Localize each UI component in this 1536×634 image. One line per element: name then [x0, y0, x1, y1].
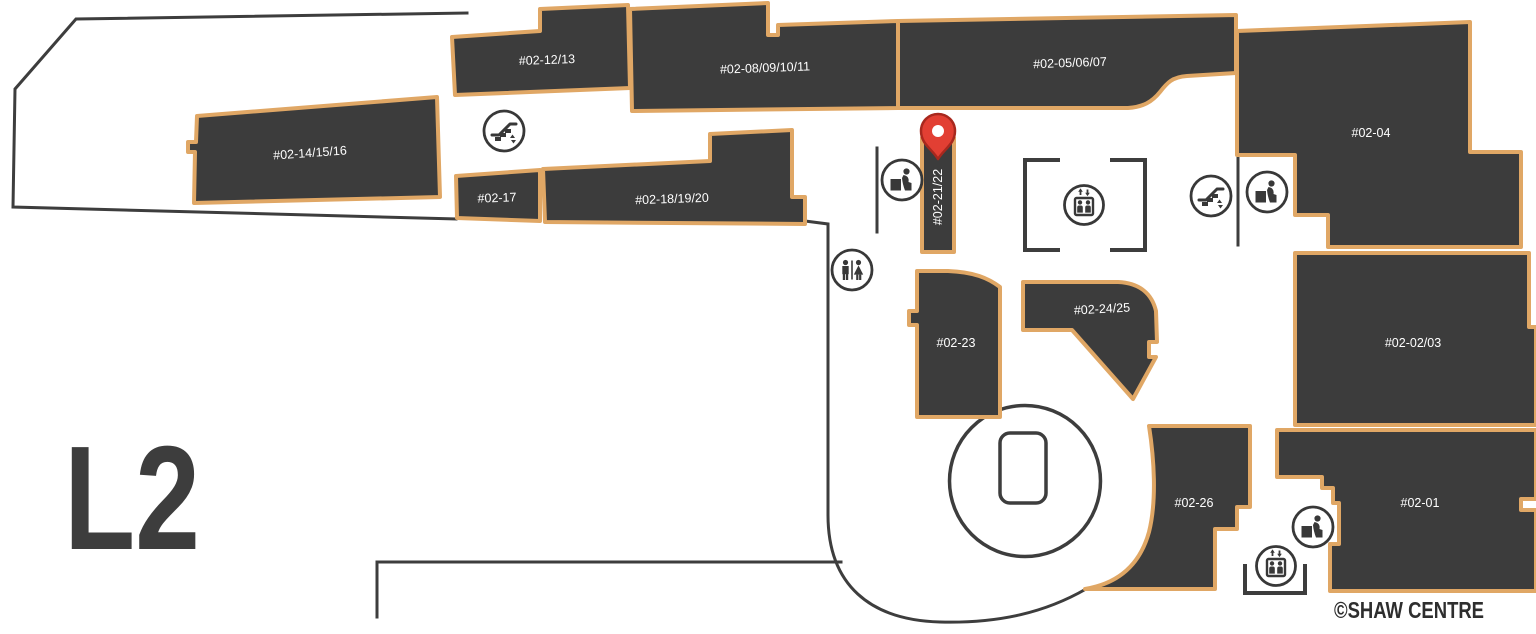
- unit-label: #02-26: [1175, 496, 1214, 510]
- unit-label: #02-21/22: [931, 169, 945, 225]
- unit-label: #02-01: [1401, 496, 1440, 510]
- unit-label: #02-04: [1352, 126, 1391, 140]
- restroom-icon: [832, 250, 872, 290]
- unit-02-18-19-20[interactable]: #02-18/19/20: [543, 130, 805, 224]
- elevator-bay-bracket-left: [1025, 160, 1060, 250]
- unit-02-04[interactable]: #02-04: [1237, 22, 1521, 247]
- copyright-text: ©SHAW CENTRE: [1334, 597, 1484, 623]
- unit-02-12-13[interactable]: #02-12/13: [452, 5, 630, 95]
- unit-02-23[interactable]: #02-23: [909, 271, 1000, 417]
- elevator-bay-bracket-right: [1110, 160, 1145, 250]
- floor-label: L2: [64, 416, 200, 581]
- nursing-room-icon: [1293, 507, 1333, 547]
- unit-label: #02-05/06/07: [1033, 55, 1107, 72]
- unit-label: #02-18/19/20: [635, 191, 709, 208]
- escalator-icon: [484, 111, 524, 151]
- mall-floor-map: #02-12/13 #02-08/09/10/11 #02-05/06/07 #…: [0, 0, 1536, 634]
- unit-02-14-15-16[interactable]: #02-14/15/16: [188, 97, 440, 203]
- unit-02-17[interactable]: #02-17: [456, 170, 540, 221]
- floor-map-canvas: #02-12/13 #02-08/09/10/11 #02-05/06/07 #…: [0, 0, 1536, 634]
- unit-label: #02-24/25: [1074, 301, 1131, 318]
- unit-label: #02-23: [937, 336, 976, 350]
- unit-02-24-25[interactable]: #02-24/25: [1023, 282, 1157, 399]
- unit-02-08-09-10-11[interactable]: #02-08/09/10/11: [630, 3, 898, 111]
- nursing-room-icon: [1247, 172, 1287, 212]
- corridor-wall-lower: [377, 562, 841, 617]
- unit-02-05-06-07[interactable]: #02-05/06/07: [898, 15, 1236, 108]
- unit-label: #02-17: [477, 190, 516, 205]
- elevator-icon: [1257, 547, 1296, 586]
- unit-02-02-03[interactable]: #02-02/03: [1295, 253, 1536, 425]
- unit-02-26[interactable]: #02-26: [1085, 426, 1250, 589]
- unit-label: #02-02/03: [1385, 336, 1441, 350]
- elevator-icon: [1065, 186, 1104, 225]
- escalator-icon: [1191, 176, 1231, 216]
- nursing-room-icon: [882, 160, 922, 200]
- unit-label: #02-12/13: [519, 52, 576, 68]
- atrium-circle: [950, 406, 1101, 557]
- atrium-opening: [1000, 433, 1046, 503]
